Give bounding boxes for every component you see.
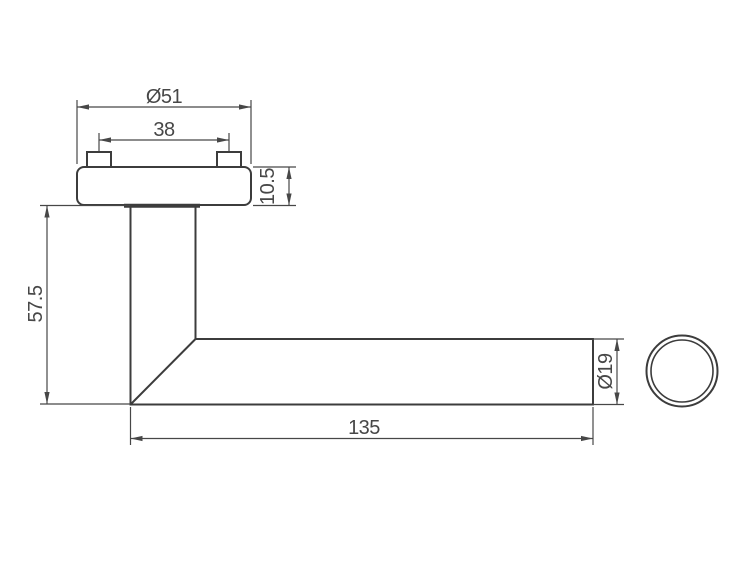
dim-label-tube-diameter: Ø19 xyxy=(595,353,617,390)
neck-and-lever-silhouette xyxy=(131,206,594,405)
arrow-bottom xyxy=(44,392,49,404)
handle-outline xyxy=(131,206,594,405)
arrow-bottom xyxy=(614,393,619,405)
tube-inner-circle xyxy=(651,340,713,402)
dim-rose-thickness: 10.5 xyxy=(253,167,296,206)
dim-lever-length: 135 xyxy=(131,407,594,445)
dim-tube-diameter: Ø19 xyxy=(593,339,624,405)
miter-joint-line xyxy=(131,339,196,405)
arrow-left xyxy=(99,137,111,142)
tube-outer-circle xyxy=(647,336,718,407)
dim-handle-height: 57.5 xyxy=(25,206,130,405)
arrow-bottom xyxy=(286,194,291,206)
lever-handle-drawing: Ø51 38 10.5 57.5 xyxy=(0,0,733,587)
fixing-pin-right xyxy=(217,152,241,167)
arrow-top xyxy=(614,339,619,351)
dim-label-rose-thickness: 10.5 xyxy=(257,168,279,205)
arrow-right xyxy=(581,436,593,441)
arrow-top xyxy=(286,167,291,179)
rose-plate xyxy=(77,167,251,205)
arrow-left xyxy=(77,104,89,109)
technical-drawing-canvas: Ø51 38 10.5 57.5 xyxy=(0,0,733,587)
dim-label-handle-height: 57.5 xyxy=(25,285,47,322)
dim-pin-spacing: 38 xyxy=(99,119,229,151)
dim-label-pin-spacing: 38 xyxy=(153,119,175,141)
dim-label-lever-length: 135 xyxy=(348,417,380,439)
arrow-right xyxy=(217,137,229,142)
arrow-top xyxy=(44,206,49,218)
arrow-right xyxy=(239,104,251,109)
dim-label-rose-diameter: Ø51 xyxy=(146,86,183,108)
arrow-left xyxy=(131,436,143,441)
fixing-pin-left xyxy=(87,152,111,167)
rose-side-view xyxy=(77,152,251,206)
tube-cross-section xyxy=(647,336,718,407)
